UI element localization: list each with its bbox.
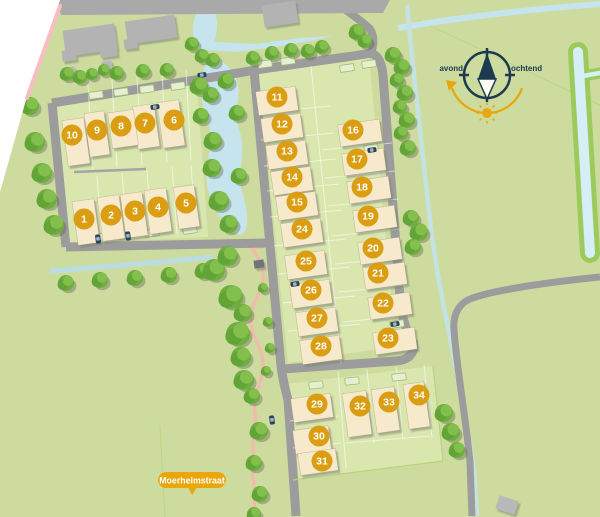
- plot-marker-23[interactable]: 23: [378, 328, 399, 349]
- plot-marker-24[interactable]: 24: [292, 219, 313, 240]
- map-canvas: 1234567891011121314151617181920212223242…: [0, 0, 600, 517]
- plot-marker-20[interactable]: 20: [363, 238, 384, 259]
- plot-marker-4[interactable]: 4: [148, 197, 169, 218]
- plot-marker-8[interactable]: 8: [111, 116, 132, 137]
- plot-number: 3: [132, 206, 138, 218]
- plot-number: 23: [382, 333, 394, 345]
- plot-number: 9: [94, 125, 100, 137]
- site-plan-map: 1234567891011121314151617181920212223242…: [0, 0, 600, 517]
- plot-marker-11[interactable]: 11: [267, 87, 288, 108]
- plot-number: 18: [356, 182, 368, 194]
- plot-number: 30: [313, 431, 325, 443]
- plot-number: 20: [367, 243, 379, 255]
- plot-number: 15: [291, 197, 303, 209]
- plot-marker-16[interactable]: 16: [343, 120, 364, 141]
- plot-marker-22[interactable]: 22: [373, 293, 394, 314]
- plot-number: 4: [155, 202, 161, 214]
- plot-number: 32: [354, 401, 366, 413]
- plot-marker-31[interactable]: 31: [312, 451, 333, 472]
- plot-marker-33[interactable]: 33: [379, 392, 400, 413]
- plot-marker-27[interactable]: 27: [307, 308, 328, 329]
- plot-number: 28: [315, 341, 327, 353]
- plot-marker-29[interactable]: 29: [307, 394, 328, 415]
- driveway: [114, 88, 129, 97]
- driveway: [89, 91, 104, 100]
- plot-number: 10: [66, 130, 78, 142]
- plot-marker-10[interactable]: 10: [62, 125, 83, 146]
- driveway: [362, 60, 377, 69]
- plot-number: 19: [362, 211, 374, 223]
- plot-marker-1[interactable]: 1: [74, 209, 95, 230]
- plot-marker-3[interactable]: 3: [125, 201, 146, 222]
- park-shed: [253, 259, 264, 268]
- plot-number: 25: [300, 256, 312, 268]
- plot-number: 31: [316, 456, 328, 468]
- driveway: [309, 381, 324, 389]
- plot-number: 6: [171, 115, 177, 127]
- plot-marker-2[interactable]: 2: [101, 205, 122, 226]
- plot-number: 13: [281, 146, 293, 158]
- plot-number: 17: [351, 154, 363, 166]
- plot-number: 24: [296, 224, 308, 236]
- compass-west-label: avond: [439, 64, 463, 73]
- plot-marker-14[interactable]: 14: [282, 167, 303, 188]
- plot-number: 34: [413, 390, 425, 402]
- driveway: [171, 82, 186, 91]
- plot-marker-5[interactable]: 5: [176, 193, 197, 214]
- driveway: [340, 64, 355, 73]
- plot-marker-21[interactable]: 21: [368, 263, 389, 284]
- driveway: [392, 373, 407, 381]
- plot-marker-15[interactable]: 15: [287, 192, 308, 213]
- plot-marker-6[interactable]: 6: [164, 110, 185, 131]
- plot-number: 7: [142, 118, 148, 130]
- plot-number: 33: [383, 397, 395, 409]
- plot-marker-7[interactable]: 7: [135, 113, 156, 134]
- plot-marker-30[interactable]: 30: [309, 426, 330, 447]
- plot-number: 5: [183, 198, 189, 210]
- plot-number: 26: [305, 285, 317, 297]
- plot-marker-9[interactable]: 9: [87, 120, 108, 141]
- plot-number: 27: [311, 313, 323, 325]
- plot-marker-26[interactable]: 26: [301, 280, 322, 301]
- street-name-label: Moerheimstraat: [159, 476, 225, 486]
- plot-marker-19[interactable]: 19: [358, 206, 379, 227]
- plot-marker-25[interactable]: 25: [296, 251, 317, 272]
- driveway: [345, 377, 360, 385]
- plot-number: 21: [372, 268, 384, 280]
- plot-number: 8: [118, 121, 124, 133]
- plot-marker-28[interactable]: 28: [311, 336, 332, 357]
- plot-marker-12[interactable]: 12: [272, 114, 293, 135]
- plot-number: 29: [311, 399, 323, 411]
- plot-number: 1: [81, 214, 87, 226]
- driveway: [140, 85, 155, 94]
- plot-marker-18[interactable]: 18: [352, 177, 373, 198]
- plot-number: 16: [347, 125, 359, 137]
- plot-marker-17[interactable]: 17: [347, 149, 368, 170]
- plot-number: 11: [271, 92, 282, 104]
- plot-number: 2: [108, 210, 114, 222]
- road-south-loop: [66, 243, 268, 247]
- plot-marker-34[interactable]: 34: [409, 385, 430, 406]
- plot-number: 22: [377, 298, 389, 310]
- compass-east-label: ochtend: [511, 64, 542, 73]
- plot-marker-32[interactable]: 32: [350, 396, 371, 417]
- plot-number: 14: [286, 172, 298, 184]
- road-band-top: [57, 0, 390, 15]
- plot-number: 12: [276, 119, 288, 131]
- plot-marker-13[interactable]: 13: [277, 141, 298, 162]
